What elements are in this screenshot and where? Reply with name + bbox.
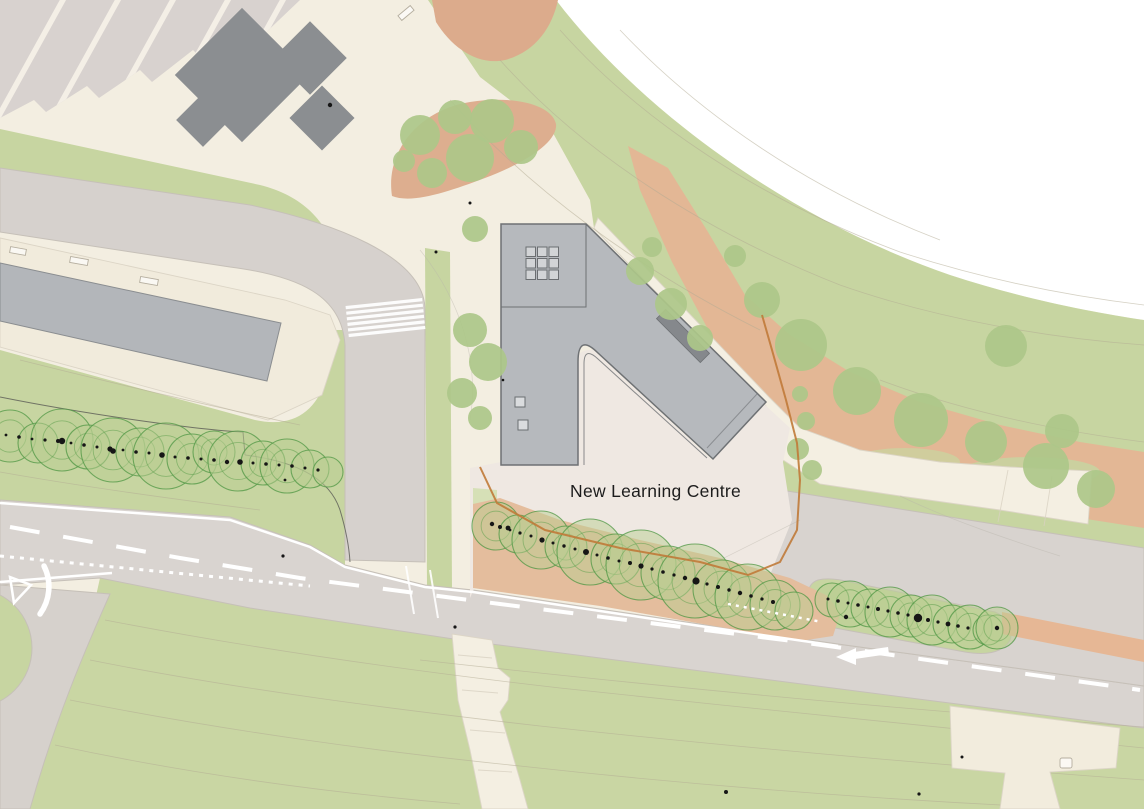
tree-trunk-dot <box>509 529 512 532</box>
tree-trunk-dot <box>705 582 708 585</box>
tree-trunk-dot <box>847 602 850 605</box>
proposed-tree <box>468 406 492 430</box>
proposed-tree <box>797 412 815 430</box>
tree-trunk-dot <box>867 606 870 609</box>
proposed-tree <box>469 343 507 381</box>
tree-trunk-dot <box>672 573 675 576</box>
tree-trunk-dot <box>738 591 742 595</box>
tree-trunk-dot <box>59 438 65 444</box>
building-label: New Learning Centre <box>570 481 741 501</box>
tree-trunk-dot <box>966 626 969 629</box>
tree-trunk-dot <box>936 620 939 623</box>
tree-trunk-dot <box>692 577 699 584</box>
survey-point-dot <box>284 479 287 482</box>
proposed-tree <box>504 130 538 164</box>
proposed-tree <box>1077 470 1115 508</box>
tree-trunk-dot <box>583 549 589 555</box>
tree-trunk-dot <box>304 467 307 470</box>
tree-trunk-dot <box>827 598 830 601</box>
survey-point-dot <box>469 202 472 205</box>
proposed-tree <box>833 367 881 415</box>
proposed-tree <box>965 421 1007 463</box>
tree-trunk-dot <box>264 462 268 466</box>
tree-trunk-dot <box>122 449 125 452</box>
proposed-tree <box>985 325 1027 367</box>
tree-trunk-dot <box>876 607 880 611</box>
tree-trunk-dot <box>278 464 281 467</box>
tree-trunk-dot <box>926 618 930 622</box>
tree-trunk-dot <box>896 611 900 615</box>
tree-trunk-dot <box>490 522 494 526</box>
tree-trunk-dot <box>110 448 116 454</box>
tree-trunk-dot <box>212 458 216 462</box>
proposed-tree <box>744 282 780 318</box>
proposed-tree <box>462 216 488 242</box>
site-plan-svg: New Learning Centre <box>0 0 1144 809</box>
tree-trunk-dot <box>134 450 138 454</box>
tree-trunk-dot <box>96 446 99 449</box>
proposed-tree <box>417 158 447 188</box>
tree-trunk-dot <box>316 468 319 471</box>
proposed-tree <box>453 313 487 347</box>
survey-point-dot <box>435 251 438 254</box>
tree-trunk-dot <box>252 462 255 465</box>
tree-trunk-dot <box>906 613 909 616</box>
tree-trunk-dot <box>914 614 922 622</box>
tree-trunk-dot <box>574 548 577 551</box>
tree-trunk-dot <box>886 609 889 612</box>
proposed-tree <box>626 257 654 285</box>
skylight-grid <box>526 247 559 280</box>
site-plan: New Learning Centre <box>0 0 1144 809</box>
survey-point-dot <box>453 625 456 628</box>
tree-trunk-dot <box>661 570 665 574</box>
tree-trunk-dot <box>43 438 46 441</box>
tree-trunk-dot <box>200 458 203 461</box>
tree-trunk-dot <box>618 560 621 563</box>
tree-trunk-dot <box>17 435 21 439</box>
tree-trunk-dot <box>995 626 999 630</box>
survey-point-dot <box>502 379 505 382</box>
tree-trunk-dot <box>596 554 599 557</box>
proposed-tree <box>642 237 662 257</box>
survey-point-dot <box>281 554 284 557</box>
tree-trunk-dot <box>70 442 73 445</box>
tree-trunk-dot <box>174 456 177 459</box>
proposed-tree <box>792 386 808 402</box>
tree-trunk-dot <box>539 537 544 542</box>
tree-trunk-dot <box>946 622 951 627</box>
tree-trunk-dot <box>518 531 521 534</box>
survey-point-dot <box>724 790 728 794</box>
proposed-tree <box>894 393 948 447</box>
tree-trunk-dot <box>159 452 165 458</box>
tree-trunk-dot <box>716 585 720 589</box>
survey-point-dot <box>328 103 332 107</box>
proposed-tree <box>655 288 687 320</box>
tree-trunk-dot <box>82 443 86 447</box>
tree-trunk-dot <box>638 563 643 568</box>
tree-trunk-dot <box>290 464 294 468</box>
tree-trunk-dot <box>956 624 960 628</box>
tree-trunk-dot <box>606 556 610 560</box>
tree-trunk-dot <box>727 588 730 591</box>
proposed-tree <box>802 460 822 480</box>
proposed-tree <box>724 245 746 267</box>
proposed-tree <box>687 325 713 351</box>
tree-trunk-dot <box>836 599 840 603</box>
tree-trunk-dot <box>628 561 632 565</box>
survey-point-dot <box>961 756 964 759</box>
tree-trunk-dot <box>186 456 190 460</box>
tree-trunk-dot <box>760 597 763 600</box>
tree-trunk-dot <box>31 438 34 441</box>
tree-trunk-dot <box>683 576 687 580</box>
tree-trunk-dot <box>856 603 860 607</box>
existing-tree <box>313 457 343 487</box>
existing-tree <box>775 592 813 630</box>
tree-trunk-dot <box>530 535 533 538</box>
tree-trunk-dot <box>148 452 151 455</box>
proposed-tree <box>400 115 440 155</box>
survey-point-dot <box>917 792 920 795</box>
proposed-tree <box>1023 443 1069 489</box>
tree-trunk-dot <box>225 460 229 464</box>
survey-point-dot <box>844 615 848 619</box>
proposed-tree <box>393 150 415 172</box>
tree-trunk-dot <box>771 600 775 604</box>
proposed-tree <box>447 378 477 408</box>
proposed-tree <box>446 134 494 182</box>
tree-trunk-dot <box>552 542 555 545</box>
proposed-tree <box>775 319 827 371</box>
tree-trunk-dot <box>650 567 653 570</box>
tree-trunk-dot <box>749 594 753 598</box>
proposed-tree <box>438 100 472 134</box>
tree-trunk-dot <box>562 544 565 547</box>
access-road-east-verge <box>425 248 452 590</box>
tree-trunk-dot <box>498 525 502 529</box>
proposed-tree <box>1045 414 1079 448</box>
tree-trunk-dot <box>5 434 8 437</box>
tree-trunk-dot <box>237 459 243 465</box>
